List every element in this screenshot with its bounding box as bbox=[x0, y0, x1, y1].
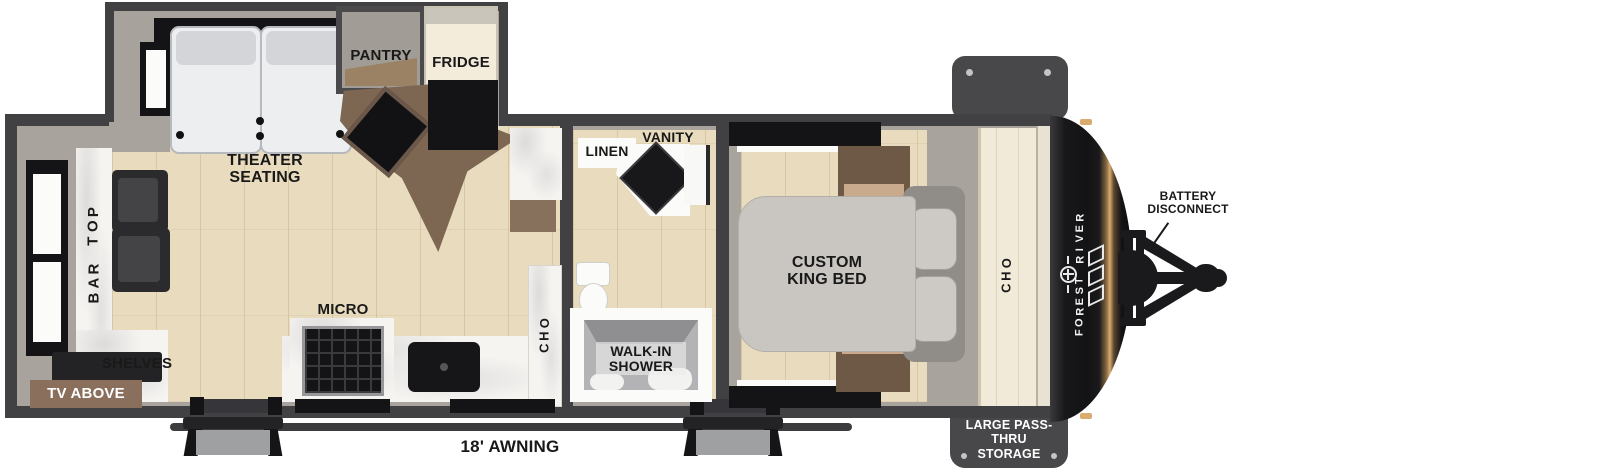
bottom-window-kitchen-right bbox=[450, 399, 555, 413]
sink-drain bbox=[440, 363, 448, 371]
slideout-side-window-pane bbox=[146, 50, 166, 108]
entry-step bbox=[696, 430, 770, 455]
label-micro: MICRO bbox=[298, 302, 388, 318]
label-pass-thru-storage: LARGE PASS-THRU STORAGE bbox=[958, 418, 1060, 461]
rear-window-pane bbox=[33, 174, 61, 254]
label-ohc-kitchen: OHC bbox=[530, 300, 560, 372]
entry-door-main-jamb bbox=[268, 397, 282, 415]
bottom-window-kitchen-left bbox=[295, 399, 390, 413]
label-ohc-bedroom: OHC bbox=[992, 245, 1022, 307]
stripe bbox=[1088, 244, 1104, 267]
shower-pan-back bbox=[584, 320, 698, 344]
cupholder bbox=[176, 131, 184, 139]
forest-river-wordmark: REVIR TSEROF bbox=[1070, 184, 1090, 366]
roof-storage-tab bbox=[952, 56, 1068, 120]
entry-step bbox=[196, 430, 270, 455]
emblem-dash bbox=[1067, 285, 1069, 293]
tab-rivet bbox=[1044, 69, 1051, 76]
emblem-dash bbox=[1067, 256, 1069, 264]
steps-by-counter bbox=[510, 200, 556, 232]
entry-step-top bbox=[183, 417, 283, 429]
medicine-cabinet bbox=[684, 145, 710, 205]
rear-window-pane bbox=[33, 262, 61, 342]
entry-step-top bbox=[683, 417, 783, 429]
stove bbox=[302, 326, 384, 396]
entry-door-main-jamb bbox=[190, 397, 204, 415]
counter-by-fridge bbox=[510, 128, 562, 200]
slideout-wall-left bbox=[105, 2, 114, 122]
stripe bbox=[1088, 264, 1104, 287]
label-battery-disconnect: BATTERY DISCONNECT bbox=[1136, 190, 1240, 215]
forest-river-stripes-icon bbox=[1088, 248, 1104, 306]
tab-rivet bbox=[966, 69, 973, 76]
label-walk-in-shower: WALK-IN SHOWER bbox=[596, 342, 686, 375]
fridge-front bbox=[428, 80, 498, 150]
floorplan-canvas: REVIR TSEROF THEATER SEATING PANTRY bbox=[0, 0, 1600, 469]
label-linen: LINEN bbox=[578, 144, 636, 159]
label-custom-king-bed: CUSTOM KING BED bbox=[776, 255, 878, 289]
stripe bbox=[1088, 284, 1104, 307]
cap-gold-tick-bottom bbox=[1080, 413, 1092, 419]
cupholder bbox=[256, 132, 264, 140]
wall-band-left-of-seats bbox=[112, 126, 170, 152]
shower-bench bbox=[590, 374, 624, 390]
theater-seat-back bbox=[266, 31, 346, 65]
label-vanity: VANITY bbox=[633, 130, 703, 145]
label-tv-above: TV ABOVE bbox=[32, 386, 140, 402]
label-theater-seating: THEATER SEATING bbox=[205, 153, 325, 187]
bedroom-window-top bbox=[729, 122, 881, 146]
cap-gold-tick-top bbox=[1080, 119, 1092, 125]
pillow bbox=[911, 208, 957, 270]
label-shelves: SHELVES bbox=[92, 356, 182, 372]
label-bar-top: POT RAB bbox=[77, 185, 111, 325]
bar-stool bbox=[112, 170, 168, 232]
label-pantry: PANTRY bbox=[335, 48, 427, 64]
wall-top-left-segment bbox=[5, 114, 109, 126]
tongue-hitch bbox=[1118, 224, 1230, 336]
bar-stool bbox=[112, 228, 170, 292]
fridge-top-shade bbox=[426, 8, 496, 24]
pillow bbox=[911, 276, 957, 342]
wall-left-rear bbox=[5, 114, 17, 418]
label-fridge: FRIDGE bbox=[417, 55, 505, 71]
theater-seat-back bbox=[176, 31, 256, 65]
label-awning: 18' AWNING bbox=[450, 438, 570, 456]
cupholder bbox=[256, 117, 264, 125]
wall-bathroom-right bbox=[716, 122, 729, 410]
